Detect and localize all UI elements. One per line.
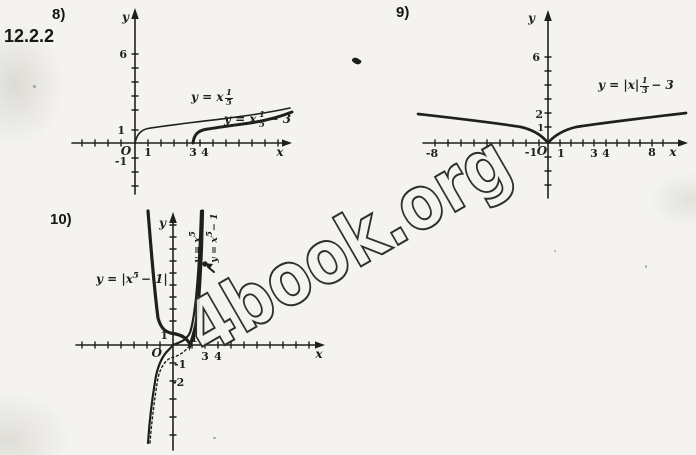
scanned-textbook-page: 8) 12.2.2 9) 10) y x O 6 1 -1 1 3 4 y = … (0, 0, 696, 455)
watermark-overlay: 4book.org (0, 0, 696, 455)
watermark-text: 4book.org (171, 118, 526, 372)
